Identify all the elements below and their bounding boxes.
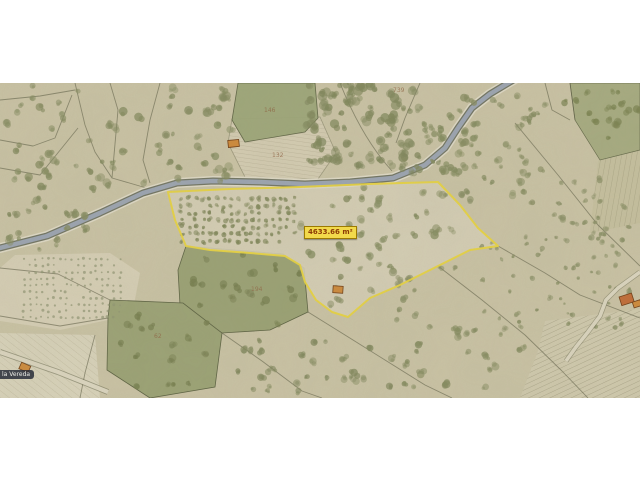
texture-grain: [0, 83, 640, 398]
page: { "map": { "selected_parcel": { "area_la…: [0, 0, 640, 480]
letterbox-top: [0, 0, 640, 83]
map-canvas[interactable]: 739 146 132 194 62 4633.66 m² la Vereda: [0, 83, 640, 398]
cadastral-map-svg: 739 146 132 194 62: [0, 83, 640, 398]
parcel-area-label: 4633.66 m²: [304, 226, 357, 239]
letterbox-bottom: [0, 398, 640, 480]
street-name-label: la Vereda: [0, 370, 34, 379]
